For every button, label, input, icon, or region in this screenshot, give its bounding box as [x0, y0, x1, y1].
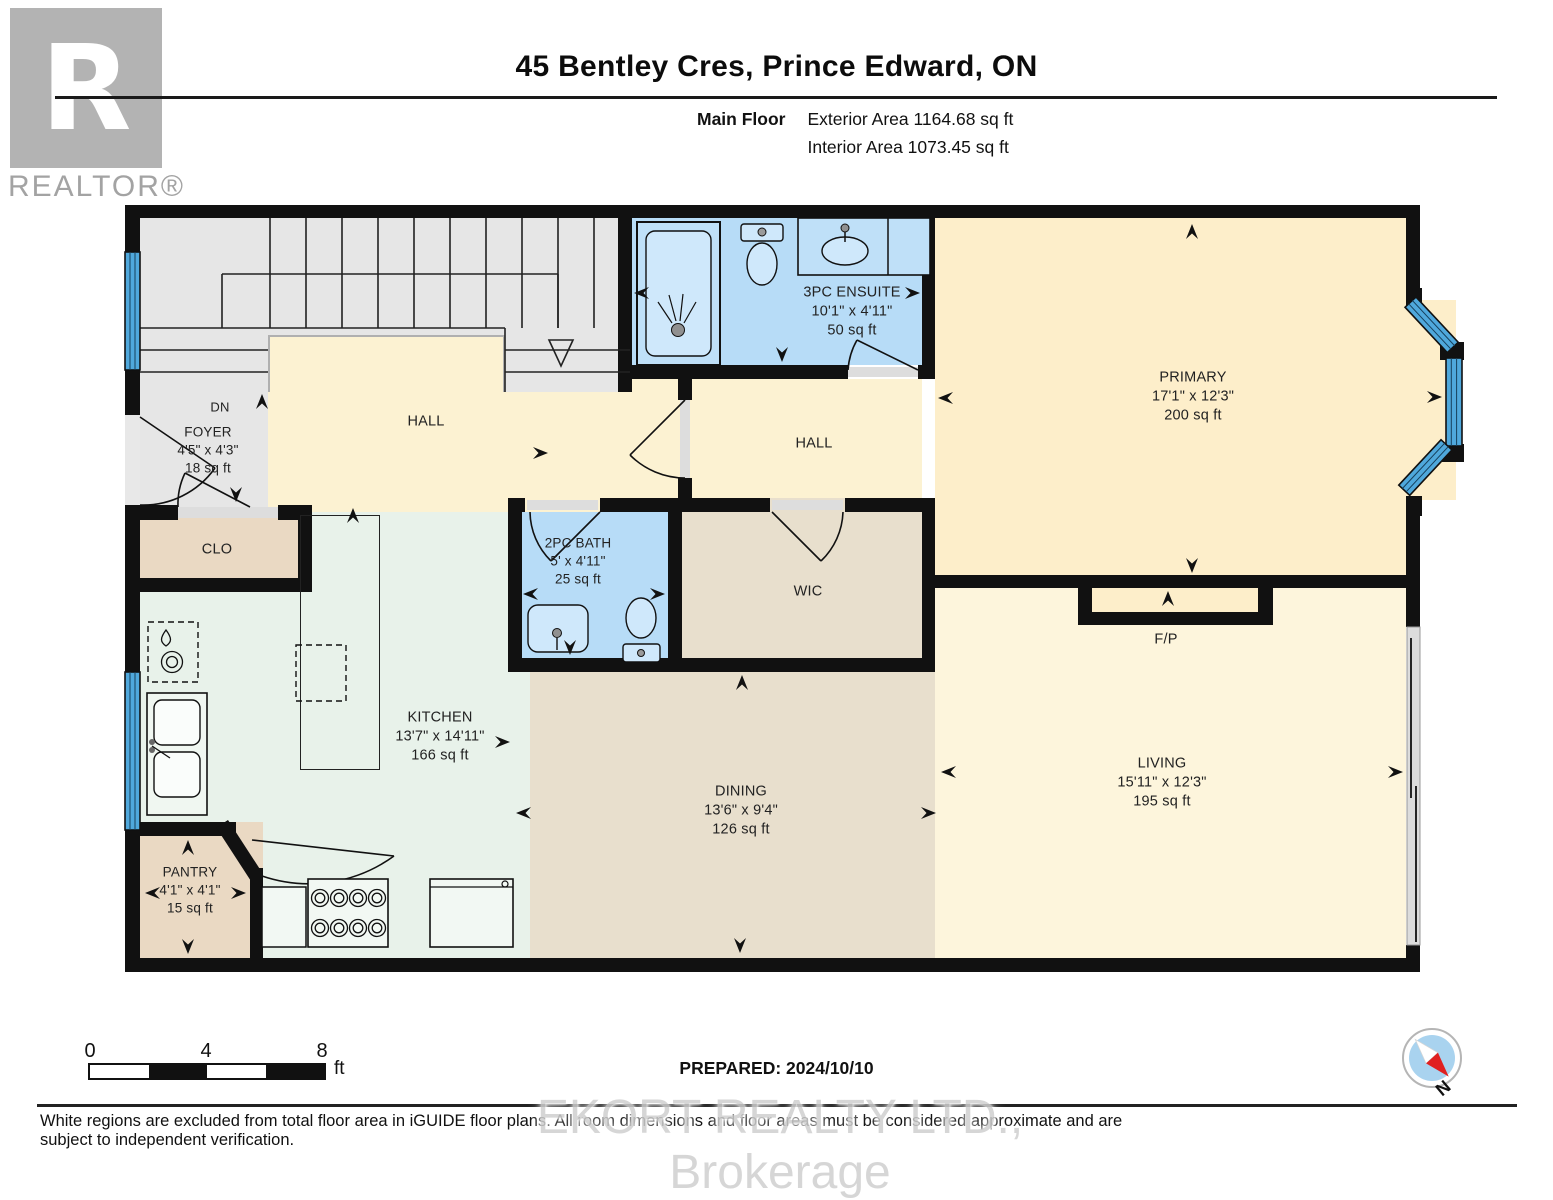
door-opening	[680, 400, 690, 478]
kitchen-island	[300, 515, 380, 770]
compass-icon	[1400, 1026, 1464, 1090]
label-kitchen: KITCHEN13'7" x 14'11"166 sq ft	[395, 708, 484, 765]
wall	[845, 498, 935, 512]
wall	[1406, 945, 1420, 972]
room-primary-bay	[1406, 300, 1456, 500]
label-pantry: PANTRY4'1" x 4'1"15 sq ft	[159, 863, 220, 916]
wall-bay-stub	[1440, 342, 1464, 360]
label-primary: PRIMARY17'1" x 12'3"200 sq ft	[1152, 368, 1234, 425]
exterior-area: Exterior Area 1164.68 sq ft	[807, 109, 1013, 130]
label-hall-inner: HALL	[795, 434, 832, 453]
realtor-logo: R	[10, 8, 162, 168]
floorplan-page: R REALTOR® 45 Bentley Cres, Prince Edwar…	[0, 0, 1553, 1200]
floor-label: Main Floor	[697, 109, 785, 165]
label-foyer: FOYER4'5" x 4'3"18 sq ft	[177, 423, 238, 476]
wall	[125, 205, 1420, 218]
wall	[1406, 205, 1420, 300]
wall	[125, 505, 140, 972]
realtor-brand-text: REALTOR®	[8, 170, 185, 204]
door-opening	[527, 500, 598, 510]
prepared-date: PREPARED: 2024/10/10	[0, 1058, 1553, 1079]
door-opening	[772, 500, 843, 510]
wall	[922, 575, 1420, 588]
label-ensuite: 3PC ENSUITE10'1" x 4'11"50 sq ft	[803, 283, 900, 340]
fireplace-inset	[1092, 588, 1258, 612]
wall-bay-stub	[1406, 288, 1422, 308]
wall	[140, 505, 178, 520]
realtor-logo-letter: R	[41, 29, 132, 147]
floor-summary: Main Floor Exterior Area 1164.68 sq ft I…	[697, 109, 1013, 165]
door-opening	[125, 415, 140, 505]
label-living: LIVING15'11" x 12'3"195 sq ft	[1117, 754, 1206, 811]
door-opening	[178, 507, 278, 518]
label-bath: 2PC BATH5' x 4'11"25 sq ft	[545, 534, 612, 587]
label-dining: DINING13'6" x 9'4"126 sq ft	[704, 782, 778, 839]
page-title: 45 Bentley Cres, Prince Edward, ON	[0, 50, 1553, 84]
wall	[140, 578, 312, 592]
wall	[668, 498, 682, 672]
wall	[678, 378, 692, 400]
label-dn: DN	[210, 398, 229, 415]
wall	[250, 868, 263, 958]
disclaimer-text: White regions are excluded from total fl…	[40, 1112, 1140, 1150]
title-divider	[55, 96, 1497, 99]
room-hall-inner	[632, 379, 922, 498]
wall-bay-stub	[1406, 496, 1422, 516]
wall	[125, 205, 140, 415]
door-opening	[848, 367, 918, 377]
wall-bay-stub	[1440, 444, 1464, 462]
room-hall-notch	[268, 335, 505, 392]
wall	[125, 958, 1420, 972]
label-fireplace: F/P	[1154, 630, 1177, 649]
interior-area: Interior Area 1073.45 sq ft	[807, 137, 1013, 158]
wall	[682, 498, 770, 512]
wall	[508, 498, 522, 672]
wall	[618, 365, 848, 379]
label-closet: CLO	[202, 540, 232, 559]
wall	[922, 218, 935, 375]
wall	[508, 658, 935, 672]
footer-divider	[37, 1104, 1517, 1107]
room-hall-upper	[268, 392, 678, 512]
label-hall-upper: HALL	[407, 412, 444, 431]
label-wic: WIC	[794, 582, 823, 601]
wall	[1406, 516, 1420, 627]
